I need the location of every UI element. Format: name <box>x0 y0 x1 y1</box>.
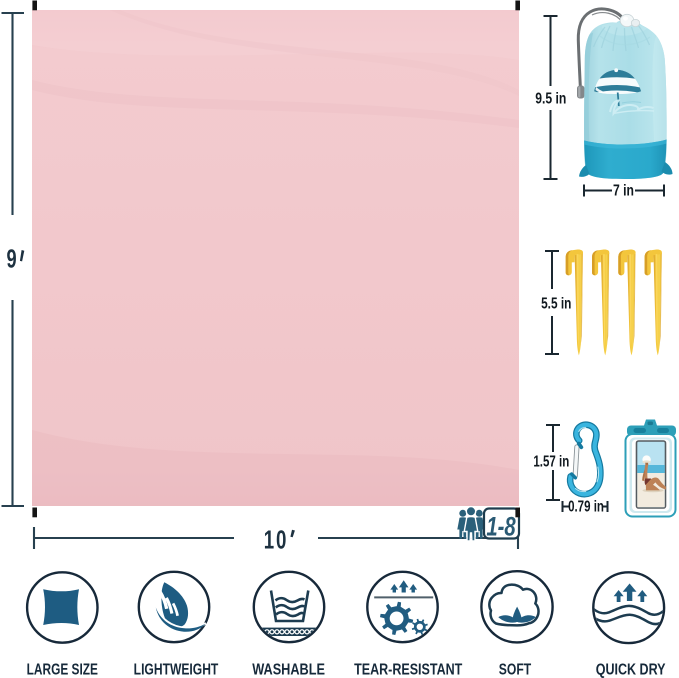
svg-text:QUICK DRY: QUICK DRY <box>596 660 666 678</box>
svg-text:WASHABLE: WASHABLE <box>252 662 325 678</box>
svg-text:SOFT: SOFT <box>499 660 532 678</box>
svg-text:5.5 in: 5.5 in <box>541 294 571 312</box>
svg-text:LIGHTWEIGHT: LIGHTWEIGHT <box>134 660 219 678</box>
svg-text:LARGE SIZE: LARGE SIZE <box>27 660 98 678</box>
svg-text:1.57 in: 1.57 in <box>533 451 569 469</box>
svg-text:7 in: 7 in <box>613 182 634 200</box>
svg-text:TEAR-RESISTANT: TEAR-RESISTANT <box>354 660 463 678</box>
svg-text:9: 9 <box>7 244 17 273</box>
svg-text:10: 10 <box>264 524 288 554</box>
svg-text:9.5 in: 9.5 in <box>535 90 566 108</box>
svg-text:1-8: 1-8 <box>486 512 516 543</box>
svg-text:0.79 in: 0.79 in <box>568 497 604 515</box>
